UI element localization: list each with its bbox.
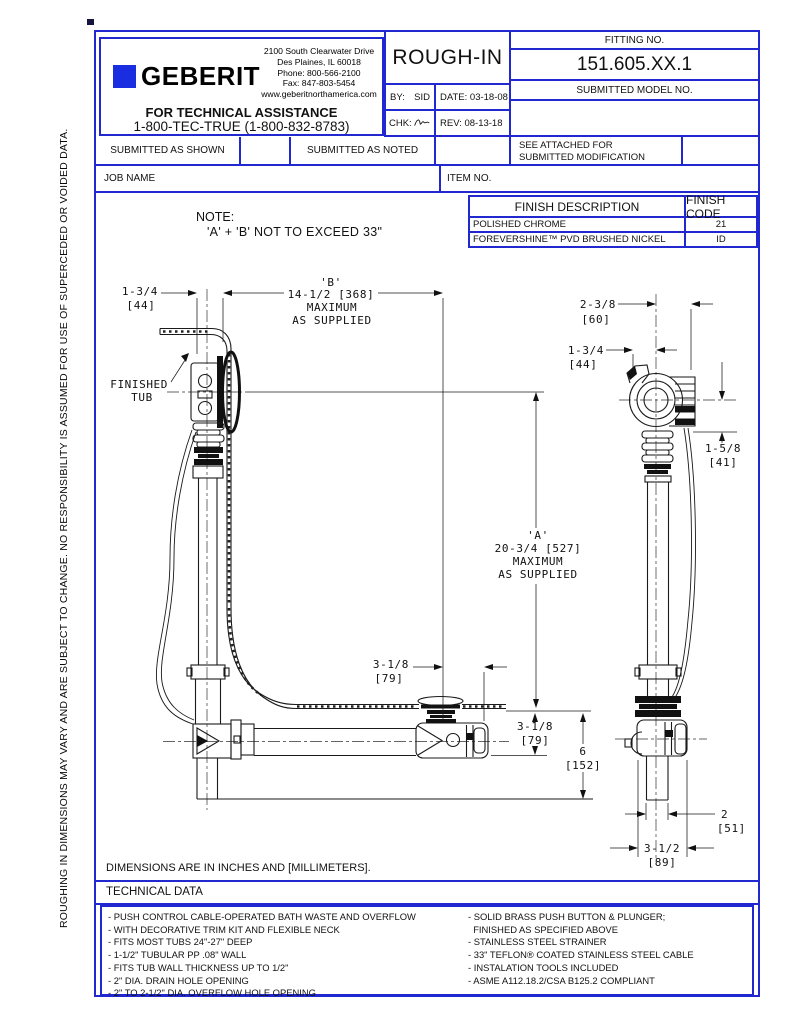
finished-tub-label-2: TUB	[131, 391, 153, 404]
see-attached-line2: SUBMITTED MODIFICATION	[519, 152, 681, 164]
finished-tub-profile	[160, 329, 506, 709]
brand-name: GEBERIT	[141, 61, 260, 92]
dim-6-mm: [152]	[565, 759, 601, 772]
side-disclaimer-text: ROUGHING IN DIMENSIONS MAY VARY AND ARE …	[58, 88, 70, 928]
by-label: BY:	[390, 92, 405, 103]
date-cell: DATE: 03-18-08	[436, 85, 511, 111]
technical-data-title: TECHNICAL DATA	[106, 886, 203, 898]
see-attached-cell: SEE ATTACHED FOR SUBMITTED MODIFICATION	[511, 137, 683, 166]
note-text: 'A' + 'B' NOT TO EXCEED 33"	[207, 225, 382, 240]
tech-item: - WITH DECORATIVE TRIM KIT AND FLEXIBLE …	[108, 924, 416, 937]
chk-label: CHK:	[389, 118, 412, 129]
rough-in-drawing: 1-3/4 [44] 'B' 14-1/2 [368] MAXIMUM AS S…	[96, 192, 761, 880]
technical-data-right-column: - SOLID BRASS PUSH BUTTON & PLUNGER; FIN…	[468, 911, 694, 987]
dim-318-right-mm: [79]	[521, 734, 550, 747]
submitted-model-label: SUBMITTED MODEL NO.	[511, 81, 758, 101]
dim-312-mm: [89]	[648, 856, 677, 869]
dim-b-as-supplied: AS SUPPLIED	[292, 314, 371, 327]
tech-item: FINISHED AS SPECIFIED ABOVE	[468, 924, 694, 937]
submitted-as-shown-checkbox	[241, 137, 291, 166]
finish-table-row: POLISHED CHROME 21	[470, 216, 756, 231]
chk-cell: CHK:	[384, 111, 436, 137]
dim-318-right-inches: 3-1/8	[517, 720, 553, 733]
job-name-cell: JOB NAME	[96, 166, 441, 193]
dim-312-inches: 3-1/2	[644, 842, 680, 855]
finish-description: POLISHED CHROME	[470, 218, 686, 231]
address-line: 2100 South Clearwater Drive	[253, 46, 385, 57]
tech-item: - 2" TO 2-1/2" DIA. OVERFLOW HOLE OPENIN…	[108, 987, 416, 1000]
tech-item: - 1-1/2" TUBULAR PP .08" WALL	[108, 949, 416, 962]
see-attached-checkbox	[683, 137, 758, 166]
geberit-logo-square-icon	[113, 65, 136, 88]
dim-a-as-supplied: AS SUPPLIED	[498, 568, 577, 581]
tech-item: - INSTALATION TOOLS INCLUDED	[468, 962, 694, 975]
dim-318-top-mm: [79]	[375, 672, 404, 685]
see-attached-line1: SEE ATTACHED FOR	[519, 140, 681, 152]
waste-pipe-side-view	[231, 720, 416, 759]
geberit-logo: GEBERIT	[113, 61, 260, 92]
doc-title: ROUGH-IN	[384, 32, 511, 85]
finish-description-header: FINISH DESCRIPTION	[470, 197, 686, 216]
finish-code: ID	[686, 233, 756, 246]
tech-item: - 2" DIA. DRAIN HOLE OPENING	[108, 975, 416, 988]
dimension-arrowheads	[181, 290, 725, 851]
submitted-model-value	[511, 101, 758, 137]
dim-b-maximum: MAXIMUM	[307, 301, 358, 314]
rev-cell: REV: 08-13-18	[436, 111, 511, 137]
tech-item: - STAINLESS STEEL STRAINER	[468, 936, 694, 949]
dim-158-mm: [41]	[709, 456, 738, 469]
dim-b-value: 14-1/2 [368]	[288, 288, 375, 301]
divider-line	[96, 880, 758, 882]
finished-tub-label-1: FINISHED	[110, 378, 168, 391]
company-address: 2100 South Clearwater Drive Des Plaines,…	[253, 46, 385, 100]
chk-signature	[414, 115, 431, 131]
address-line: Fax: 847-803-5454	[253, 78, 385, 89]
address-line: Des Plaines, IL 60018	[253, 57, 385, 68]
submitted-as-shown-cell: SUBMITTED AS SHOWN	[96, 137, 241, 166]
tech-item: - 33" TEFLON® COATED STAINLESS STEEL CAB…	[468, 949, 694, 962]
waste-tee-side-view	[193, 724, 231, 799]
overflow-head-end-view	[627, 365, 695, 427]
drain-tee-side-view	[416, 723, 488, 758]
dim-158-inches: 1-5/8	[705, 442, 741, 455]
overflow-tube-side-view	[187, 478, 229, 724]
technical-data-left-column: - PUSH CONTROL CABLE-OPERATED BATH WASTE…	[108, 911, 416, 1000]
dim-left-offset-mm: [44]	[127, 299, 156, 312]
tech-item: - PUSH CONTROL CABLE-OPERATED BATH WASTE…	[108, 911, 416, 924]
dim-134-right-mm: [44]	[569, 358, 598, 371]
address-line: Phone: 800-566-2100	[253, 68, 385, 79]
units-note: DIMENSIONS ARE IN INCHES AND [MILLIMETER…	[106, 862, 371, 874]
control-cable-end-view	[672, 428, 695, 699]
by-cell: BY: SID	[384, 85, 436, 111]
technical-assistance-title: FOR TECHNICAL ASSISTANCE	[101, 105, 382, 120]
tech-item: - FITS TUB WALL THICKNESS UP TO 1/2"	[108, 962, 416, 975]
dim-238-inches: 2-3/8	[580, 298, 616, 311]
corner-print-mark	[87, 19, 94, 25]
tech-item: - ASME A112.18.2/CSA B125.2 COMPLIANT	[468, 975, 694, 988]
tech-item: - FITS MOST TUBS 24"-27" DEEP	[108, 936, 416, 949]
dim-a-value: 20-3/4 [527]	[495, 542, 582, 555]
dim-2-inches: 2	[721, 808, 728, 821]
dim-a-name: 'A'	[527, 529, 549, 542]
drawing-note: NOTE: 'A' + 'B' NOT TO EXCEED 33"	[196, 210, 382, 240]
dim-134-right-inches: 1-3/4	[568, 344, 604, 357]
finish-code-header: FINISH CODE	[686, 197, 756, 216]
drain-stopper-side-view	[418, 697, 463, 724]
by-value: SID	[414, 92, 430, 103]
control-cable-side-view	[156, 430, 196, 724]
note-title: NOTE:	[196, 210, 382, 225]
technical-data-box: - PUSH CONTROL CABLE-OPERATED BATH WASTE…	[100, 905, 754, 996]
submitted-as-noted-checkbox	[436, 137, 511, 166]
dim-238-mm: [60]	[582, 313, 611, 326]
dim-left-offset-inches: 1-3/4	[122, 285, 158, 298]
finish-table: FINISH DESCRIPTION FINISH CODE POLISHED …	[468, 195, 758, 248]
drawing-sheet: GEBERIT 2100 South Clearwater Drive Des …	[94, 30, 760, 997]
dim-6-inches: 6	[579, 745, 586, 758]
fitting-no-label: FITTING NO.	[511, 32, 758, 50]
item-no-cell: ITEM NO.	[441, 166, 758, 193]
tech-item: - SOLID BRASS PUSH BUTTON & PLUNGER;	[468, 911, 694, 924]
finish-table-header: FINISH DESCRIPTION FINISH CODE	[470, 197, 756, 216]
finish-description: FOREVERSHINE™ PVD BRUSHED NICKEL	[470, 233, 686, 246]
brand-block: GEBERIT 2100 South Clearwater Drive Des …	[99, 37, 384, 136]
overflow-tube-end-view	[635, 482, 681, 717]
technical-assistance-phone: 1-800-TEC-TRUE (1-800-832-8783)	[101, 119, 382, 134]
dim-2-mm: [51]	[717, 822, 746, 835]
address-website: www.geberitnorthamerica.com	[253, 89, 385, 100]
finish-code: 21	[686, 218, 756, 231]
dim-a-maximum: MAXIMUM	[513, 555, 564, 568]
finish-table-row: FOREVERSHINE™ PVD BRUSHED NICKEL ID	[470, 231, 756, 246]
overflow-flex-neck-side-view	[193, 423, 224, 478]
fitting-no-value: 151.605.XX.1	[511, 50, 758, 81]
submitted-as-noted-cell: SUBMITTED AS NOTED	[291, 137, 436, 166]
dim-318-top-inches: 3-1/8	[373, 658, 409, 671]
overflow-flex-neck-end-view	[642, 431, 673, 482]
